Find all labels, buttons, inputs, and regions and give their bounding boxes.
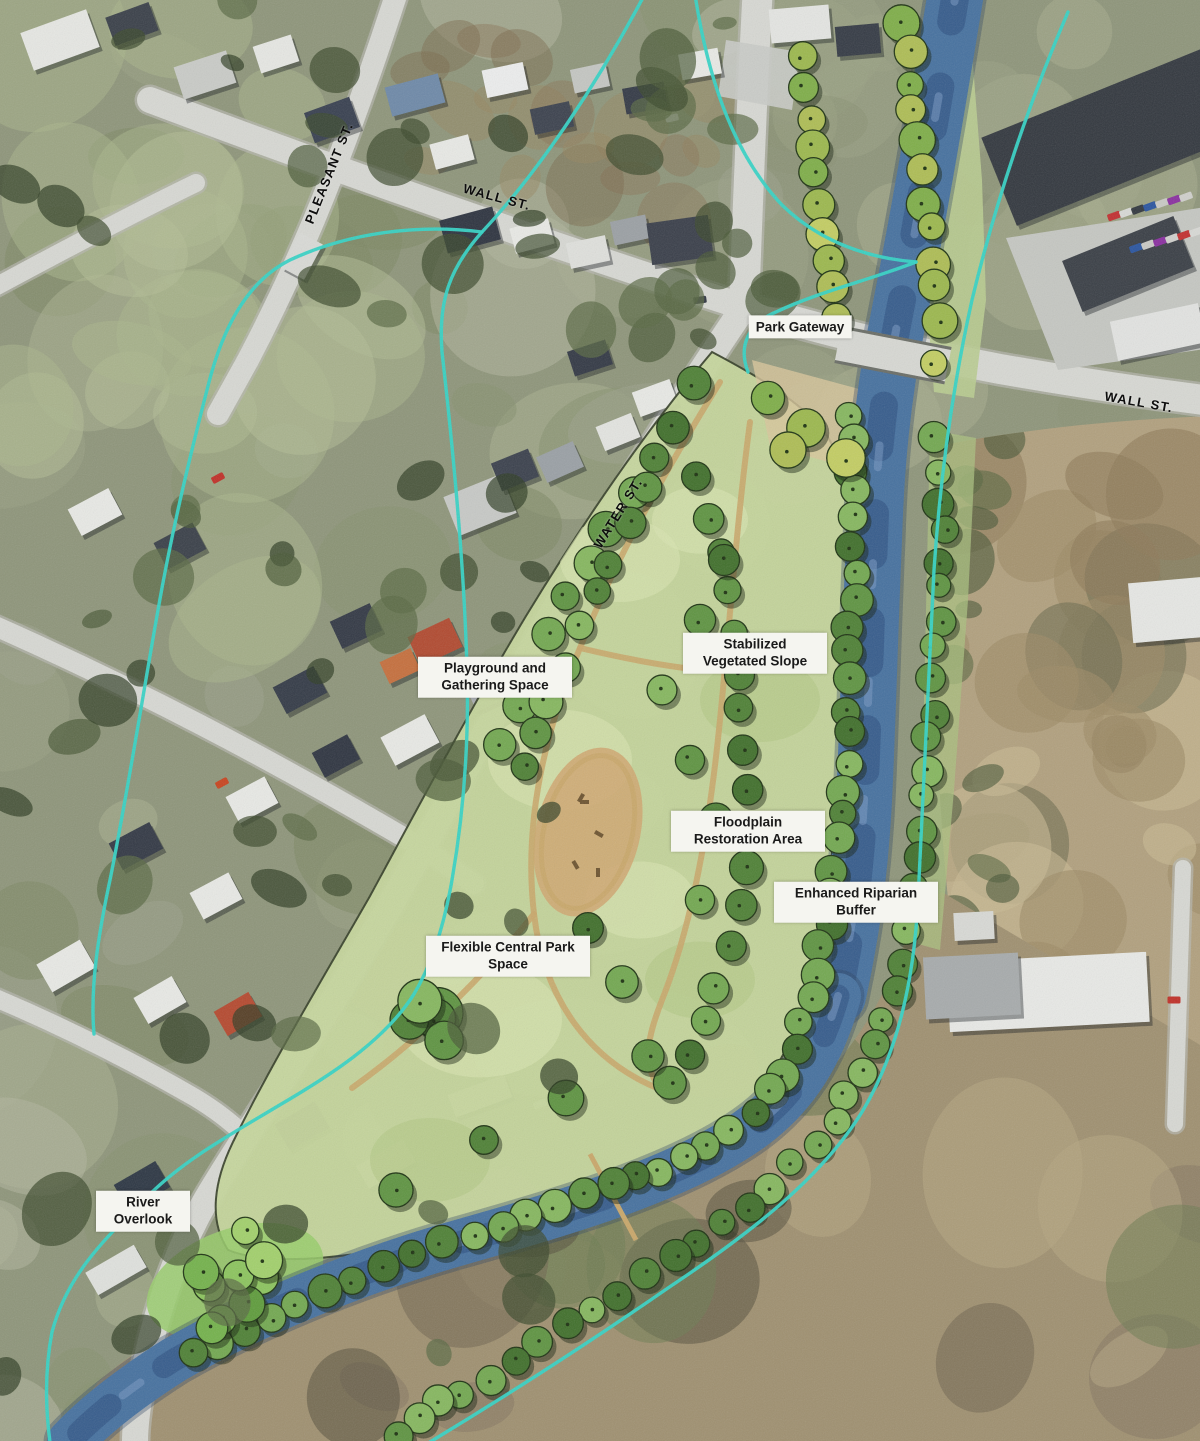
label-stabilized-vegetated-slope: Stabilized Vegetated Slope [683,633,827,674]
label-enhanced-riparian-buffer: Enhanced Riparian Buffer [774,882,938,923]
aerial-map: PLEASANT ST. WALL ST. WATER ST. WALL ST.… [0,0,1200,1441]
label-river-overlook: River Overlook [96,1191,190,1232]
label-playground-gathering-space: Playground and Gathering Space [418,657,572,698]
label-floodplain-restoration-area: Floodplain Restoration Area [671,811,825,852]
label-park-gateway: Park Gateway [749,315,852,338]
label-flexible-central-park-space: Flexible Central Park Space [426,936,590,977]
